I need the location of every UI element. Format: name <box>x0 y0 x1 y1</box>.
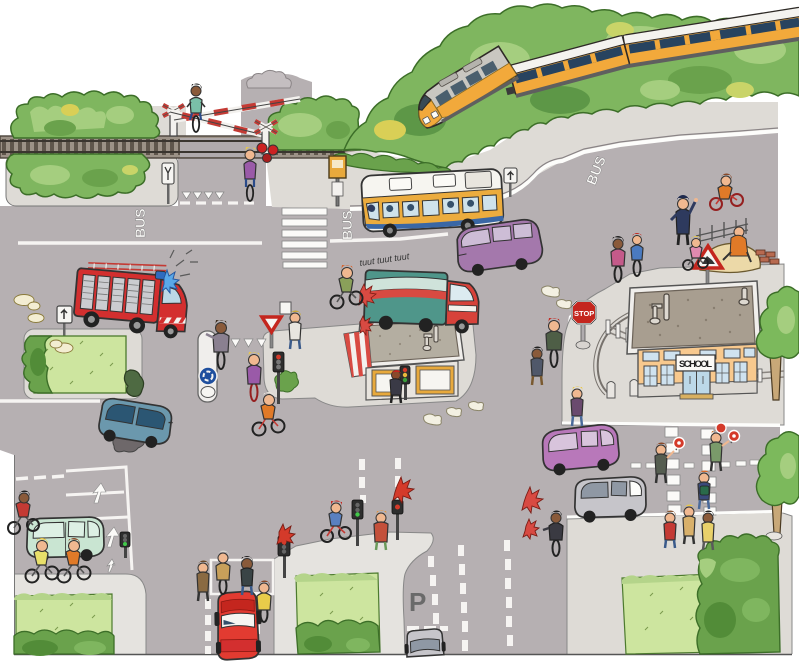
svg-text:SCHOOL: SCHOOL <box>679 359 712 370</box>
svg-text:P: P <box>409 587 426 617</box>
svg-text:BUS: BUS <box>339 210 355 240</box>
svg-text:STOP: STOP <box>574 309 594 318</box>
svg-text:BUS: BUS <box>132 208 148 238</box>
